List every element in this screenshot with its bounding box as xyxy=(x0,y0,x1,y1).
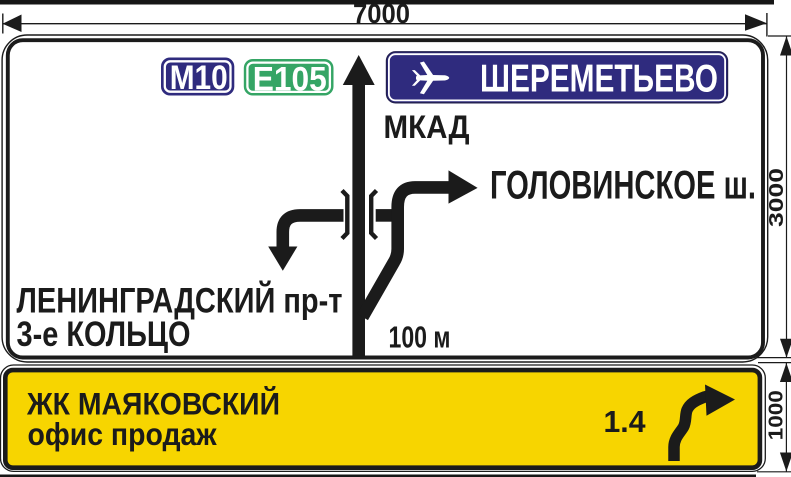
svg-text:ГОЛОВИНСКОЕ ш.: ГОЛОВИНСКОЕ ш. xyxy=(490,164,756,208)
svg-text:7000: 7000 xyxy=(353,0,410,29)
svg-text:3-е КОЛЬЦО: 3-е КОЛЬЦО xyxy=(17,315,191,354)
svg-text:МКАД: МКАД xyxy=(384,109,470,145)
svg-text:100 м: 100 м xyxy=(389,320,451,354)
svg-text:М10: М10 xyxy=(170,59,228,97)
svg-text:1000: 1000 xyxy=(765,390,788,440)
svg-text:офис продаж: офис продаж xyxy=(28,416,218,452)
svg-text:1.4: 1.4 xyxy=(604,405,646,439)
svg-text:Е105: Е105 xyxy=(253,60,327,98)
svg-text:ШЕРЕМЕТЬЕВО: ШЕРЕМЕТЬЕВО xyxy=(480,58,718,101)
